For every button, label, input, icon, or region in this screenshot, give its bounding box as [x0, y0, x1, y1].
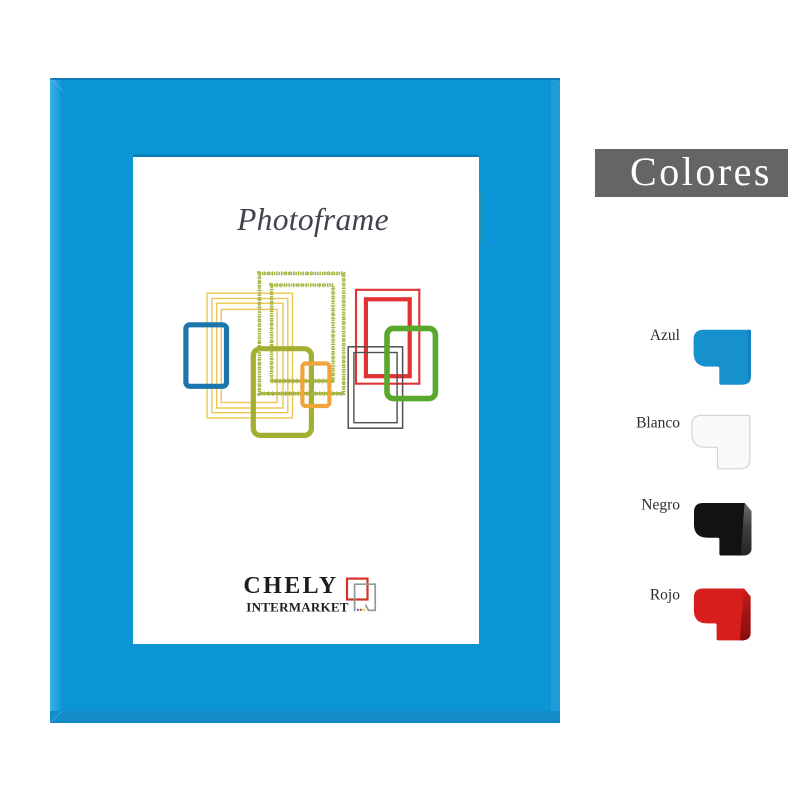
svg-text:Photoframe: Photoframe — [236, 202, 389, 237]
svg-text:Azul: Azul — [650, 327, 680, 344]
svg-text:Rojo: Rojo — [650, 587, 680, 604]
svg-text:Negro: Negro — [641, 497, 680, 514]
svg-text:Blanco: Blanco — [636, 415, 680, 432]
svg-text:Colores: Colores — [630, 149, 772, 194]
svg-text:INTERMARKET: INTERMARKET — [246, 600, 349, 615]
svg-text:CHELY: CHELY — [243, 573, 338, 599]
